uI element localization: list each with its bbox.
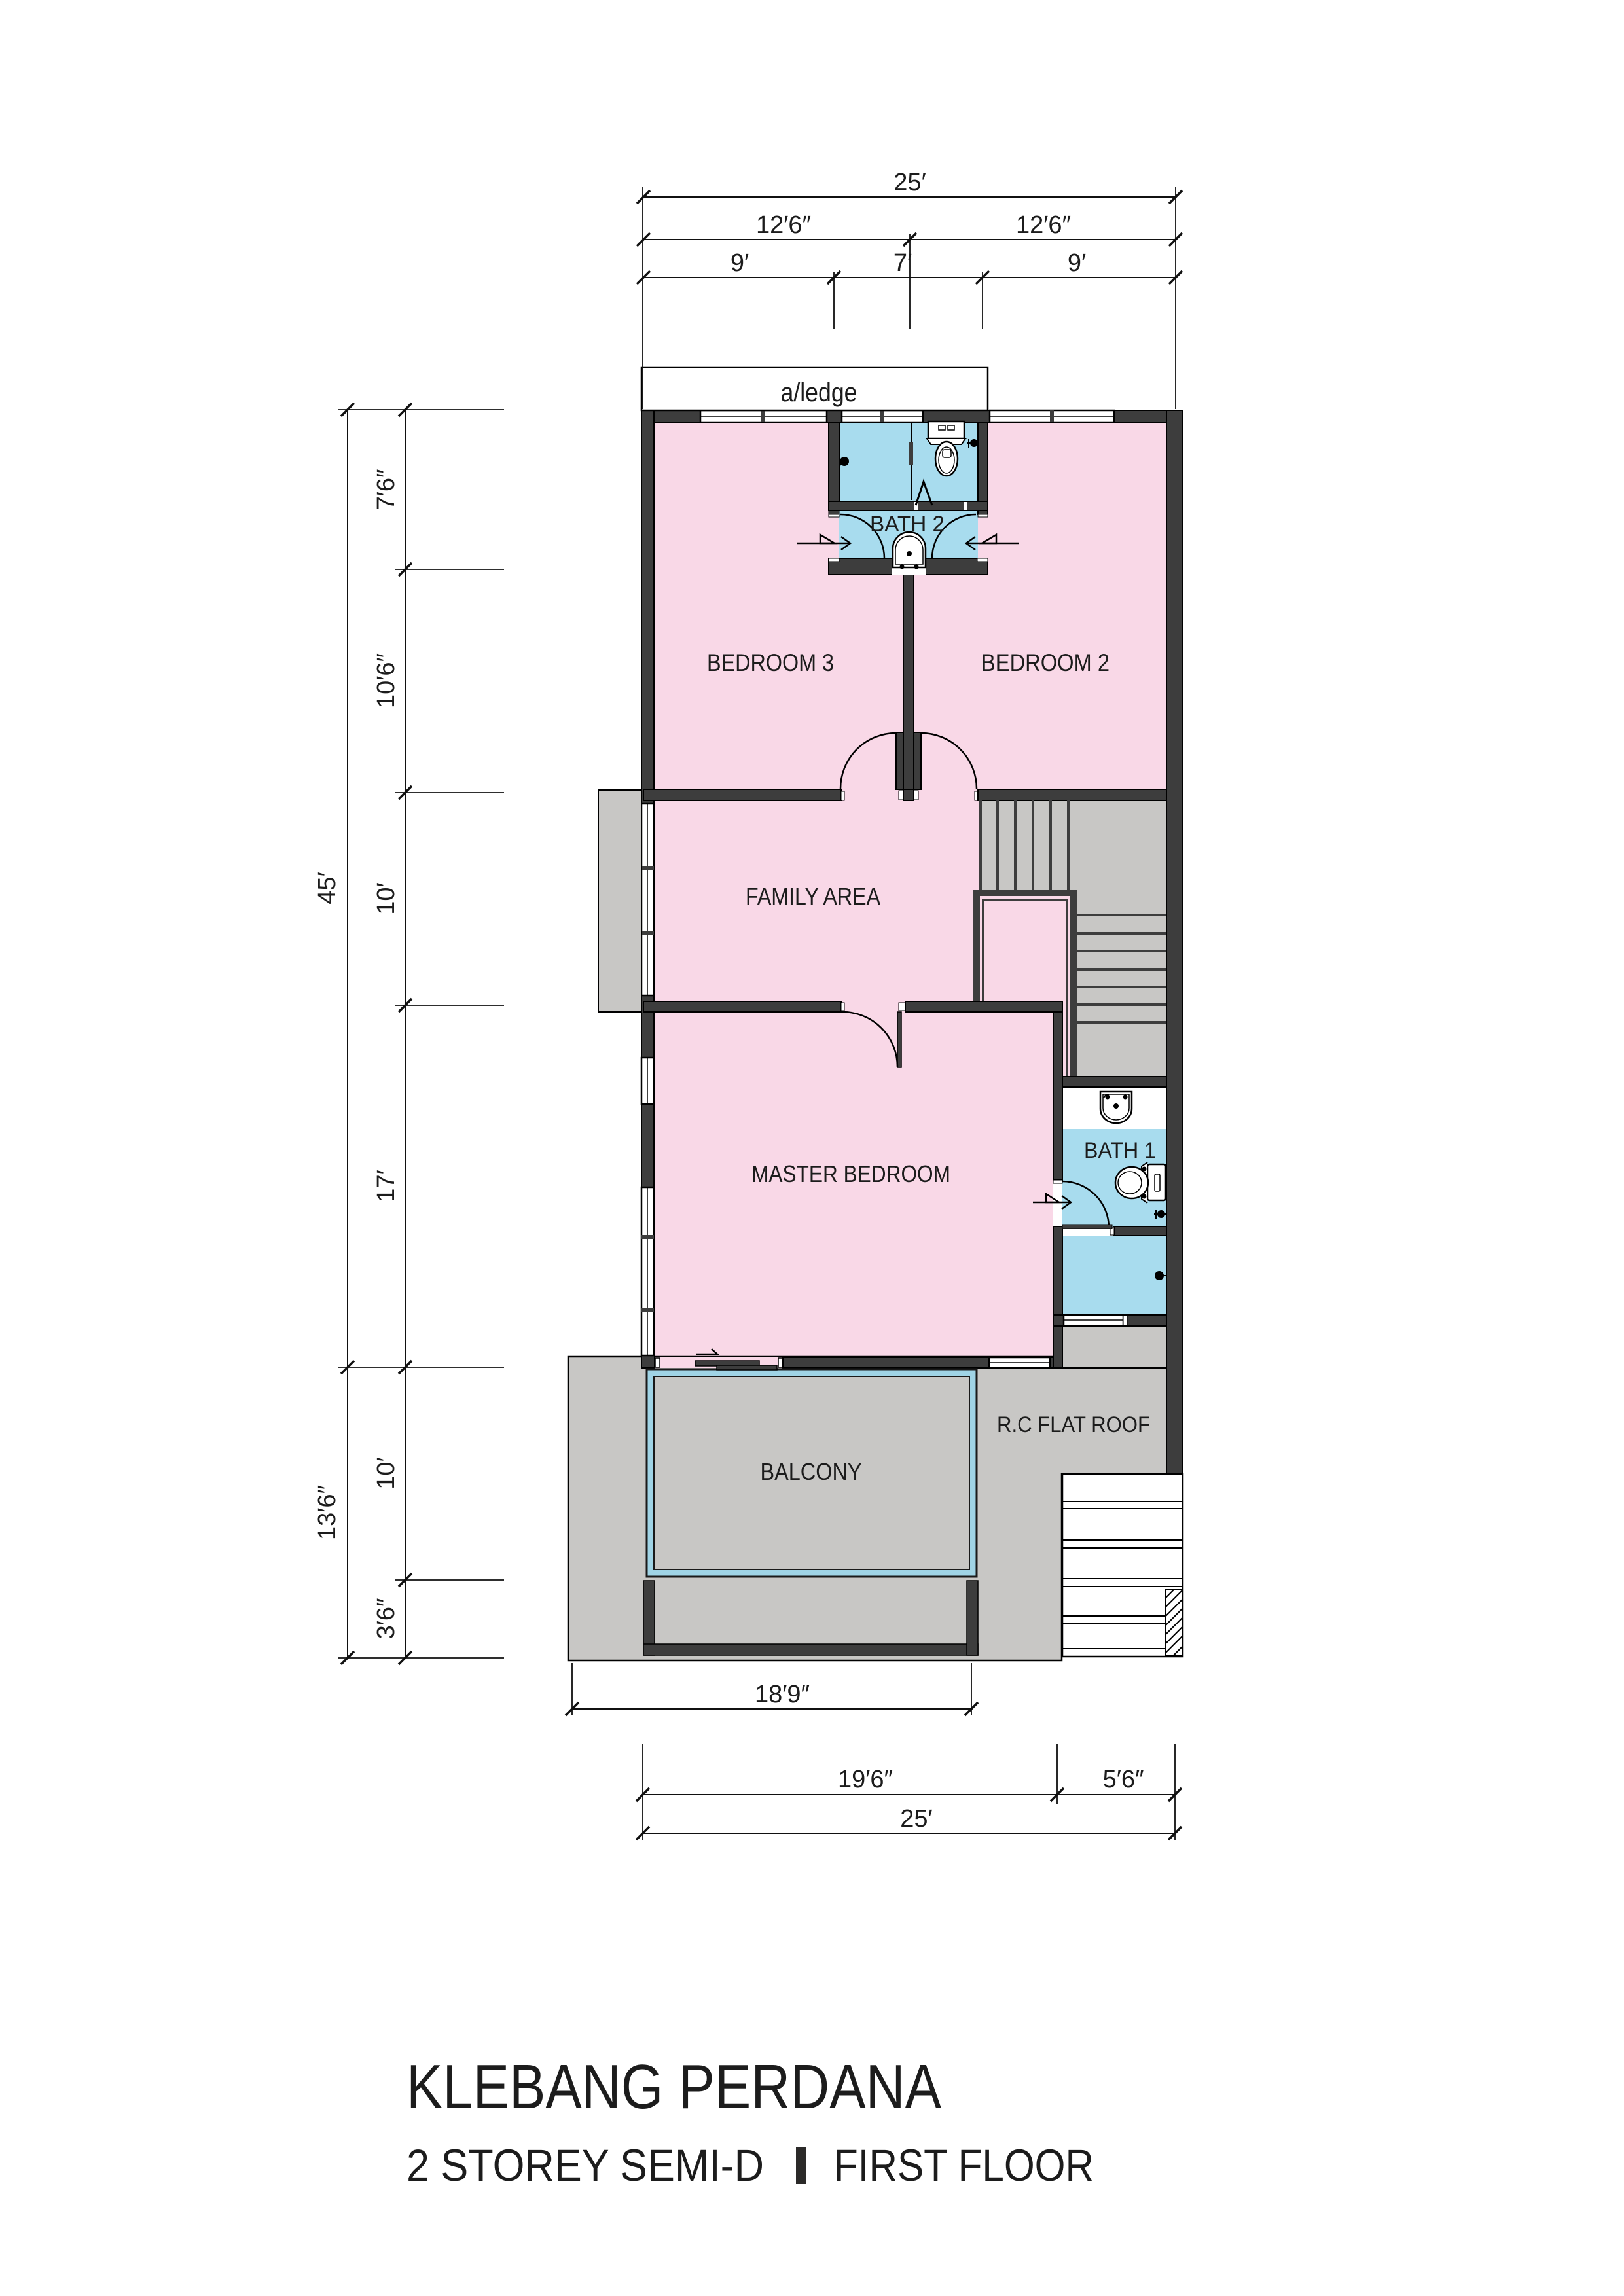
svg-text:18′9″: 18′9″: [755, 1681, 810, 1708]
svg-text:FIRST FLOOR: FIRST FLOOR: [834, 2140, 1094, 2191]
svg-text:BEDROOM 2: BEDROOM 2: [981, 649, 1110, 676]
svg-text:10′: 10′: [372, 1457, 400, 1489]
svg-text:R.C FLAT ROOF: R.C FLAT ROOF: [997, 1412, 1150, 1437]
svg-text:25′: 25′: [893, 169, 926, 196]
svg-text:MASTER BEDROOM: MASTER BEDROOM: [751, 1160, 950, 1187]
svg-text:25′: 25′: [900, 1805, 932, 1833]
svg-text:12′6″: 12′6″: [1016, 211, 1071, 239]
svg-text:10′: 10′: [372, 882, 400, 914]
svg-text:7′: 7′: [893, 249, 912, 277]
svg-text:19′6″: 19′6″: [838, 1766, 893, 1793]
svg-text:12′6″: 12′6″: [756, 211, 811, 239]
svg-text:7′6″: 7′6″: [372, 469, 400, 511]
svg-text:13′6″: 13′6″: [314, 1485, 341, 1540]
svg-text:BATH 1: BATH 1: [1084, 1138, 1156, 1163]
svg-text:FAMILY AREA: FAMILY AREA: [746, 883, 880, 910]
svg-text:2 STOREY SEMI-D: 2 STOREY SEMI-D: [406, 2140, 764, 2191]
svg-text:BALCONY: BALCONY: [761, 1458, 862, 1485]
svg-text:5′6″: 5′6″: [1103, 1766, 1144, 1793]
svg-text:BEDROOM 3: BEDROOM 3: [707, 649, 834, 676]
svg-text:a/ledge: a/ledge: [781, 378, 857, 407]
svg-text:3′6″: 3′6″: [372, 1598, 400, 1640]
svg-text:BATH 2: BATH 2: [870, 512, 945, 537]
svg-text:10′6″: 10′6″: [372, 653, 400, 708]
svg-text:17′: 17′: [372, 1170, 400, 1202]
svg-text:KLEBANG PERDANA: KLEBANG PERDANA: [406, 2052, 941, 2122]
svg-text:45′: 45′: [314, 872, 341, 904]
svg-text:9′: 9′: [731, 249, 749, 277]
svg-text:9′: 9′: [1068, 249, 1086, 277]
